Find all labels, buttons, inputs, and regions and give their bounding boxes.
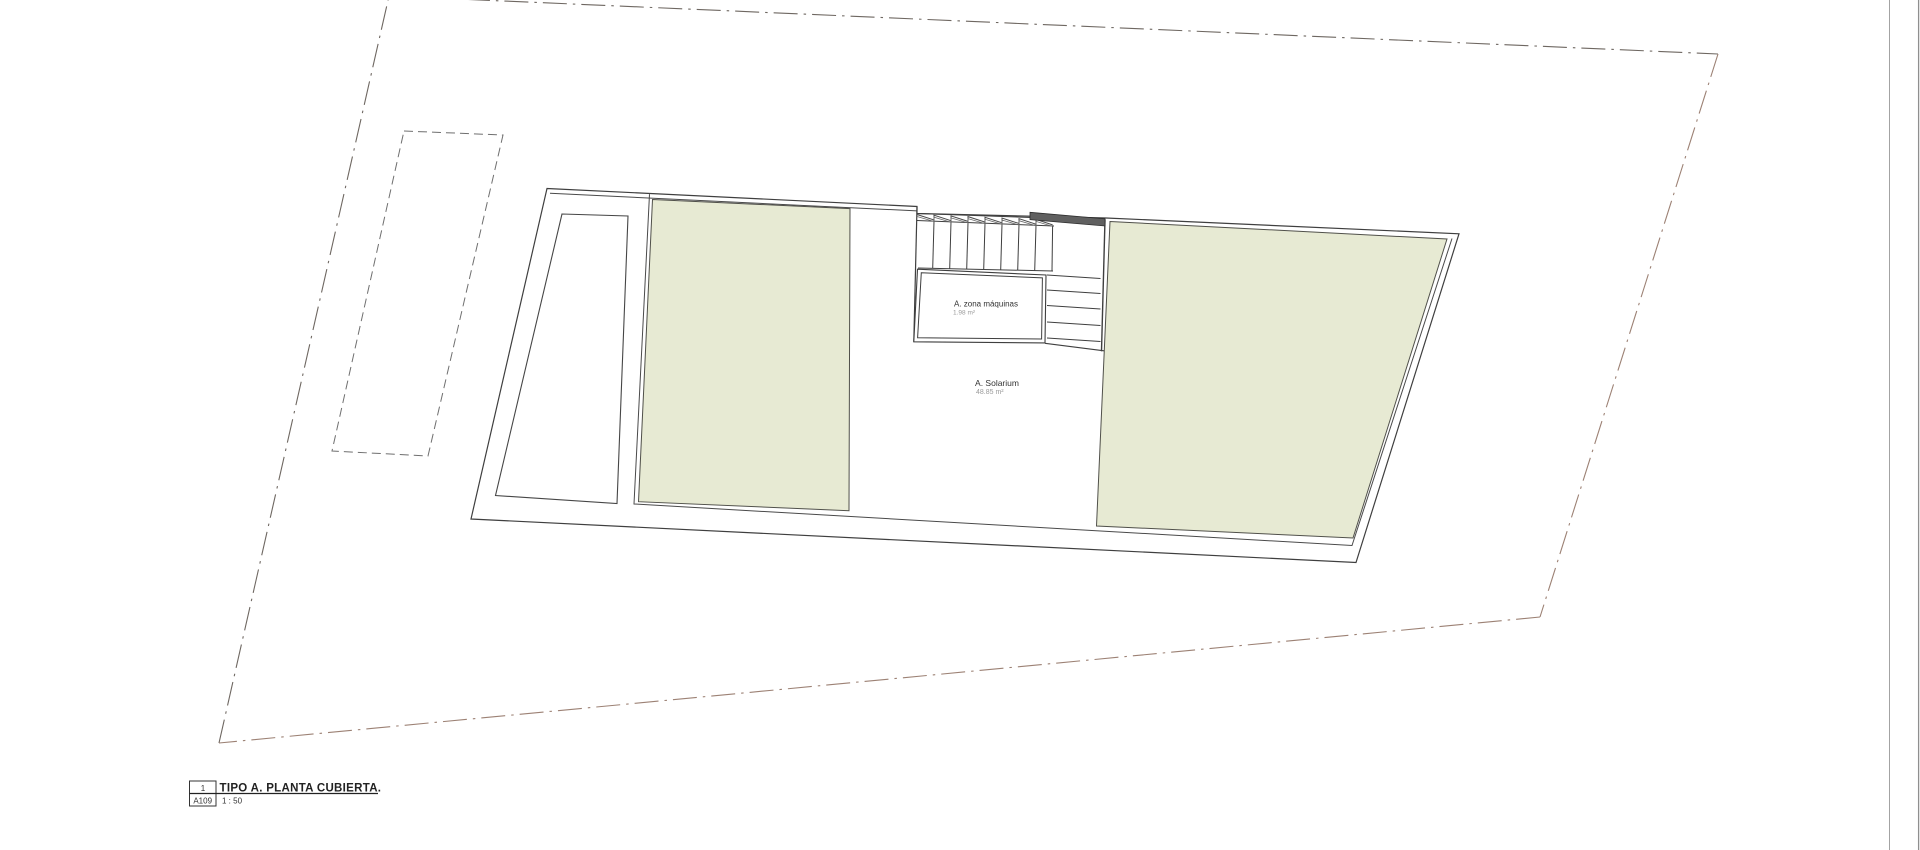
svg-text:A. zona máquinas: A. zona máquinas <box>954 300 1018 309</box>
svg-text:1: 1 <box>201 784 206 793</box>
svg-text:A. Solarium: A. Solarium <box>975 378 1019 388</box>
svg-text:1.98 m²: 1.98 m² <box>953 310 976 317</box>
svg-text:TIPO A. PLANTA CUBIERTA.: TIPO A. PLANTA CUBIERTA. <box>220 783 382 795</box>
svg-text:48.85 m²: 48.85 m² <box>976 389 1004 396</box>
svg-text:1 : 50: 1 : 50 <box>222 797 243 806</box>
svg-text:A109: A109 <box>193 796 212 805</box>
